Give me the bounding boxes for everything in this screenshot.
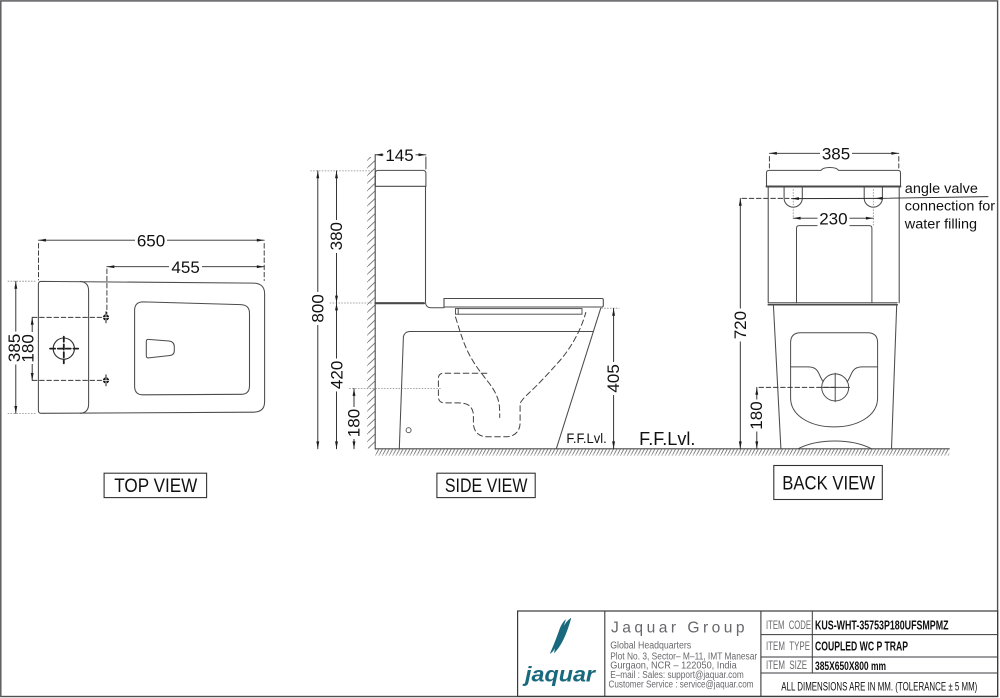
svg-text:ALL DIMENSIONS ARE IN MM. (TOL: ALL DIMENSIONS ARE IN MM. (TOLERANCE ± 5… — [781, 679, 977, 693]
svg-text:180: 180 — [747, 401, 766, 429]
svg-text:230: 230 — [819, 209, 847, 228]
svg-text:385X650X800 mm: 385X650X800 mm — [815, 659, 886, 673]
svg-text:385: 385 — [822, 145, 850, 164]
svg-text:720: 720 — [731, 311, 750, 339]
svg-text:water filling: water filling — [904, 216, 977, 231]
svg-text:180: 180 — [19, 334, 38, 362]
svg-text:ITEM CODE: ITEM CODE — [766, 618, 811, 632]
svg-text:jaquar: jaquar — [522, 662, 597, 686]
svg-text:BACK VIEW: BACK VIEW — [782, 474, 875, 495]
svg-text:Global Headquarters: Global Headquarters — [610, 640, 691, 651]
svg-text:F.F.Lvl.: F.F.Lvl. — [639, 429, 695, 449]
svg-text:650: 650 — [137, 231, 165, 250]
svg-text:405: 405 — [604, 364, 623, 392]
svg-text:Customer Service : service@jaq: Customer Service : service@jaquar.com — [609, 680, 754, 691]
svg-text:380: 380 — [327, 222, 346, 250]
svg-text:420: 420 — [328, 361, 347, 389]
svg-text:ITEM SIZE: ITEM SIZE — [766, 658, 807, 672]
svg-text:SIDE VIEW: SIDE VIEW — [445, 476, 528, 497]
svg-text:F.F.Lvl.: F.F.Lvl. — [566, 431, 606, 446]
svg-text:TOP VIEW: TOP VIEW — [114, 476, 197, 497]
svg-text:COUPLED WC P TRAP: COUPLED WC P TRAP — [815, 638, 908, 653]
svg-text:connection for: connection for — [905, 199, 996, 214]
svg-text:ITEM TYPE: ITEM TYPE — [766, 639, 810, 653]
svg-text:800: 800 — [308, 294, 327, 322]
svg-text:angle valve: angle valve — [905, 181, 978, 196]
svg-text:180: 180 — [344, 409, 363, 437]
svg-text:455: 455 — [171, 258, 199, 277]
svg-text:145: 145 — [385, 146, 413, 165]
svg-text:KUS-WHT-35753P180UFSMPMZ: KUS-WHT-35753P180UFSMPMZ — [815, 618, 949, 632]
